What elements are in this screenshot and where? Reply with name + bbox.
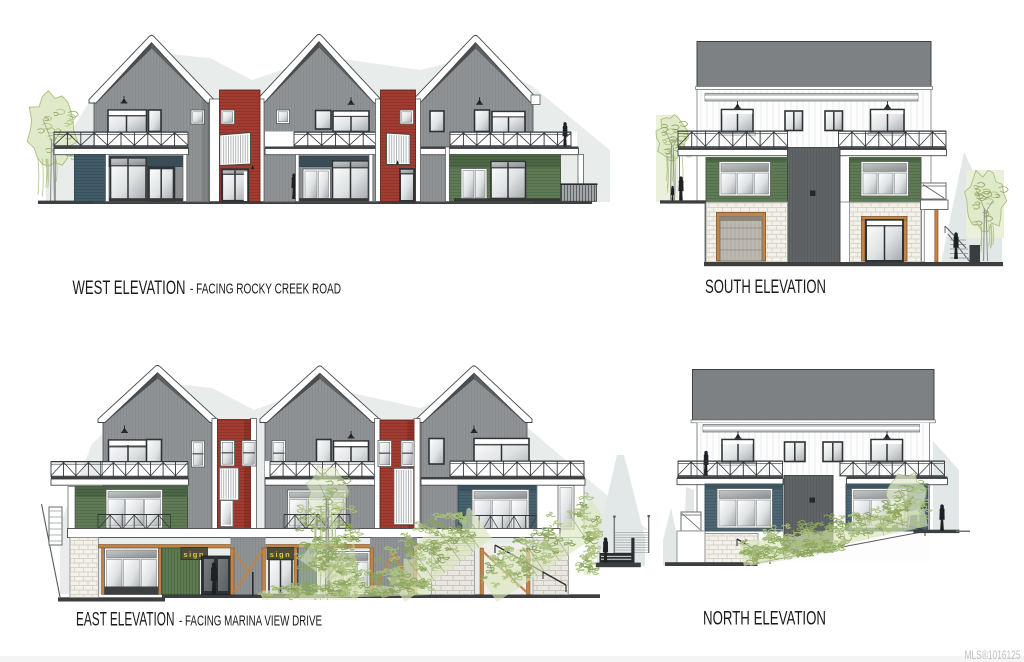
svg-text:sign: sign [270, 550, 291, 559]
svg-text:SOUTH ELEVATION: SOUTH ELEVATION [705, 276, 826, 298]
svg-text:MLS®1016125: MLS®1016125 [965, 650, 1021, 662]
svg-text:WEST ELEVATION: WEST ELEVATION [73, 277, 186, 299]
svg-text:NORTH ELEVATION: NORTH ELEVATION [703, 608, 826, 630]
svg-text:EAST ELEVATION: EAST ELEVATION [76, 609, 175, 631]
svg-text:- FACING MARINA VIEW DRIVE: - FACING MARINA VIEW DRIVE [179, 614, 322, 630]
svg-text:- FACING ROCKY CREEK ROAD: - FACING ROCKY CREEK ROAD [190, 282, 341, 298]
